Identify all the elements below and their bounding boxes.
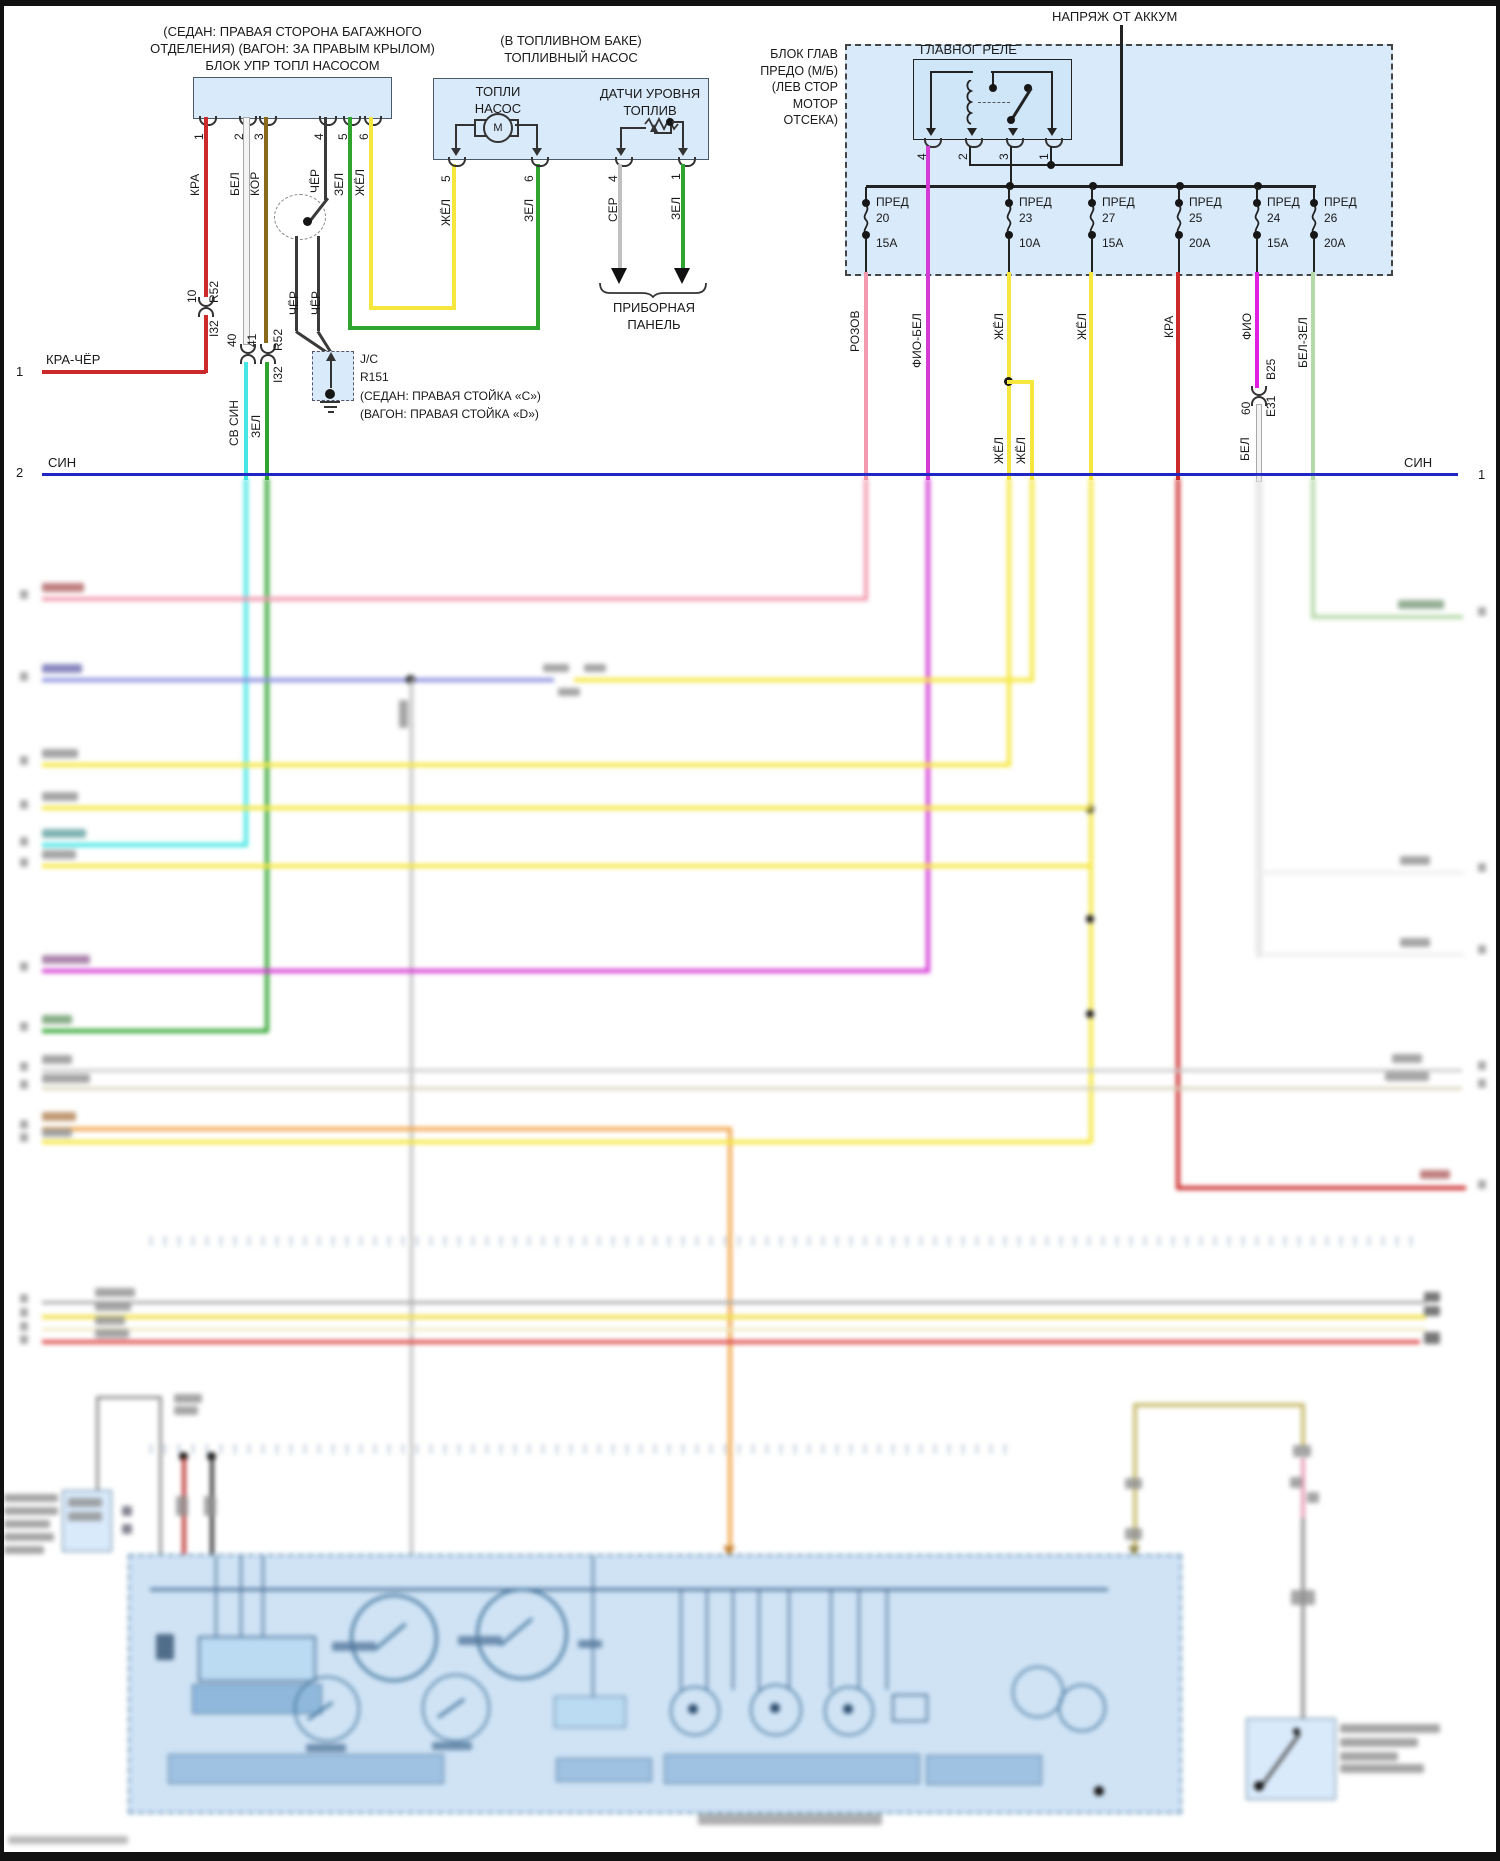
blurred-label <box>42 1128 72 1137</box>
wire-yellow <box>1007 478 1011 767</box>
panel-wire <box>706 1590 708 1690</box>
blurred-label <box>1420 1170 1450 1179</box>
blurred-label <box>1340 1764 1424 1773</box>
blurred-fineprint <box>8 1836 128 1844</box>
blurred-label <box>332 1642 376 1651</box>
wire-pink <box>864 478 868 600</box>
connector-tick-row <box>150 1444 1010 1454</box>
row-number <box>20 962 28 971</box>
row-wire-yellow <box>42 1315 1426 1319</box>
row-number <box>1478 1079 1486 1088</box>
blurred-label <box>543 664 569 672</box>
blurred-label <box>95 1316 125 1325</box>
row-number <box>20 1294 28 1303</box>
row-wire-yellow <box>42 806 1092 810</box>
wire-grey-loop <box>96 1396 162 1399</box>
row-number <box>20 1133 28 1142</box>
blurred-label <box>432 1742 472 1750</box>
junction-dot <box>1086 915 1094 923</box>
blurred-label <box>458 1636 502 1645</box>
row-number <box>20 590 28 599</box>
wire-yellow <box>1030 478 1034 682</box>
row-number <box>1478 863 1486 872</box>
row-wire-white <box>1256 953 1464 956</box>
blurred-label <box>95 1288 135 1297</box>
blurred-label <box>4 1546 44 1554</box>
blurred-label <box>1340 1724 1440 1733</box>
blurred-label <box>42 1055 72 1064</box>
connector-blob <box>1293 1445 1311 1457</box>
blurred-label <box>68 1498 102 1507</box>
panel-bus <box>150 1588 1108 1591</box>
blurred-label <box>42 664 82 673</box>
blurred-label <box>42 1112 76 1121</box>
row-wire-red <box>42 1340 1420 1344</box>
row-number <box>20 800 28 809</box>
row-wire-red <box>1176 1186 1466 1190</box>
connector-blob <box>1424 1332 1440 1344</box>
row-wire-grey <box>42 1301 1426 1304</box>
row-wire-violet <box>42 678 554 682</box>
row-wire-pink <box>42 597 868 601</box>
blurred-label <box>1400 856 1430 865</box>
panel-component <box>156 1634 174 1660</box>
blurred-label <box>1340 1752 1398 1761</box>
wire-pink <box>1301 1458 1305 1520</box>
connector-blob <box>176 1496 188 1516</box>
connector-blob <box>1125 1478 1142 1489</box>
panel-component <box>892 1694 928 1722</box>
row-number <box>1478 1061 1486 1070</box>
blurred-label <box>42 583 84 592</box>
panel-wire <box>215 1556 217 1642</box>
gauge-icon <box>422 1674 490 1742</box>
blurred-label <box>399 700 408 728</box>
row-wire-yellow <box>574 678 1034 682</box>
row-number <box>20 1322 28 1331</box>
indicator-dot <box>770 1703 780 1713</box>
wiring-diagram-page: (СЕДАН: ПРАВАЯ СТОРОНА БАГАЖНОГО ОТДЕЛЕН… <box>0 0 1500 1861</box>
ground-dot <box>1094 1786 1104 1796</box>
row-number <box>20 858 28 867</box>
blurred-label <box>68 1512 102 1521</box>
gauge-icon <box>1058 1684 1106 1732</box>
gauge-icon <box>350 1594 438 1682</box>
connector-blob <box>1307 1492 1319 1503</box>
blurred-label <box>4 1520 50 1528</box>
row-number <box>20 672 28 681</box>
blurred-label <box>174 1406 198 1415</box>
blurred-label <box>42 955 90 964</box>
row-number <box>1478 1180 1486 1189</box>
panel-label-bar <box>664 1754 920 1784</box>
wire-olive <box>1133 1403 1305 1407</box>
connector-blob <box>1125 1528 1142 1540</box>
blurred-label <box>1392 1054 1422 1063</box>
indicator-dot <box>688 1704 698 1714</box>
row-wire-magenta <box>42 969 930 973</box>
panel-module-box <box>198 1636 316 1682</box>
row-wire-orange <box>42 1127 732 1131</box>
panel-wire <box>732 1590 734 1690</box>
blurred-label <box>1340 1738 1418 1747</box>
panel-wire <box>858 1590 860 1690</box>
panel-wire <box>592 1556 594 1702</box>
connector-blob <box>204 1496 216 1516</box>
out-of-focus-region <box>0 0 1500 1861</box>
blurred-label <box>174 1394 202 1403</box>
wire-bel-zel <box>1311 478 1315 617</box>
blurred-label <box>558 688 580 696</box>
row-wire-pale <box>42 1328 1426 1331</box>
connector-blob <box>1424 1292 1440 1302</box>
row-number <box>1478 945 1486 954</box>
frame-edge <box>0 0 1500 6</box>
row-number <box>20 1062 28 1071</box>
row-number <box>20 837 28 846</box>
blurred-label <box>95 1329 129 1338</box>
blurred-label <box>698 1814 882 1825</box>
frame-edge <box>0 0 4 1861</box>
ground-dot <box>1254 1781 1264 1791</box>
row-number <box>20 1120 28 1129</box>
blurred-label <box>578 1640 602 1648</box>
panel-label-bar <box>168 1754 444 1784</box>
row-wire-grey <box>42 1069 1462 1072</box>
row-number <box>1478 607 1486 616</box>
connector-blob <box>1424 1306 1440 1316</box>
panel-wire <box>758 1590 760 1690</box>
blurred-label <box>4 1494 58 1502</box>
blurred-label <box>1398 600 1444 609</box>
wire-grey <box>1301 1518 1305 1722</box>
blurred-label <box>42 749 78 758</box>
blurred-label <box>42 1015 72 1024</box>
blurred-label <box>42 829 86 838</box>
panel-module-box <box>554 1696 626 1728</box>
row-number <box>20 1080 28 1089</box>
blurred-label <box>42 1074 90 1083</box>
row-wire-olive-white <box>42 1087 1462 1090</box>
blurred-label <box>584 664 606 672</box>
connector-blob <box>122 1506 132 1516</box>
frame-edge <box>1496 0 1500 1861</box>
connector-blob <box>1291 1590 1315 1605</box>
panel-wire <box>680 1590 682 1690</box>
panel-wire <box>240 1556 242 1642</box>
row-number <box>20 1308 28 1317</box>
wire-cyan <box>244 478 248 846</box>
row-number <box>20 1335 28 1344</box>
row-number <box>20 1022 28 1031</box>
gauge-icon <box>1012 1666 1064 1718</box>
wire-green <box>265 478 269 1032</box>
blurred-label <box>95 1302 131 1311</box>
blurred-label <box>42 792 78 801</box>
row-wire-bel-zel <box>1311 615 1463 619</box>
frame-edge <box>0 1852 1500 1861</box>
row-number <box>20 756 28 765</box>
gauge-icon <box>476 1588 568 1680</box>
contact-dot <box>1293 1728 1300 1735</box>
panel-wire <box>262 1556 264 1642</box>
row-wire-green <box>42 1029 268 1033</box>
gauge-icon <box>294 1676 360 1742</box>
panel-wire <box>788 1590 790 1690</box>
wire-red <box>1176 478 1180 1188</box>
blurred-label <box>42 850 76 859</box>
connector-tick-row <box>150 1236 1420 1246</box>
blurred-label <box>4 1507 58 1515</box>
panel-wire <box>886 1590 888 1690</box>
connector-blob <box>122 1524 132 1534</box>
blurred-label <box>1385 1072 1429 1081</box>
row-wire-yellow <box>42 864 1092 868</box>
wire-grey-loop <box>159 1396 162 1556</box>
connector-blob <box>1290 1477 1302 1488</box>
row-wire-yellow <box>42 763 1010 767</box>
wire-olive <box>1301 1403 1305 1447</box>
row-wire-cyan <box>42 843 248 847</box>
row-wire-yellow <box>42 1140 1092 1144</box>
row-wire-white <box>1256 871 1464 874</box>
junction-dot <box>1086 1010 1094 1018</box>
blurred-label <box>306 1744 346 1752</box>
wire-white <box>1256 478 1262 957</box>
wire-fio-bel <box>926 478 930 972</box>
blurred-label <box>4 1533 54 1541</box>
panel-label-bar <box>556 1758 652 1782</box>
panel-label-bar <box>926 1755 1042 1785</box>
blurred-label <box>1400 938 1430 947</box>
indicator-dot <box>843 1704 853 1714</box>
panel-wire <box>830 1590 832 1690</box>
